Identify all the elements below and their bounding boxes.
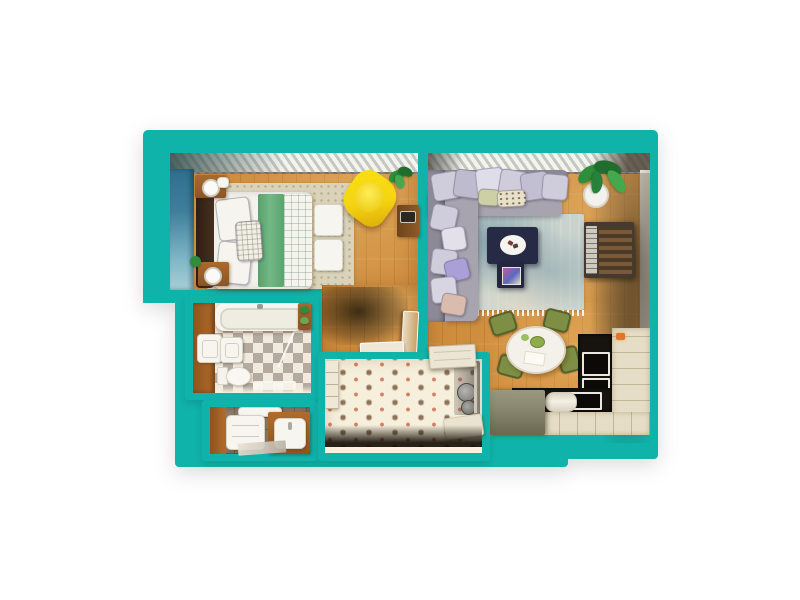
coat-rack: [454, 361, 480, 415]
threshold-door-panel: [428, 344, 476, 369]
tv-wood-slats: [599, 226, 632, 274]
tv-speaker: [586, 226, 597, 274]
table-papers: [523, 351, 546, 367]
bathroom-sink: [197, 334, 222, 363]
door-panel-line: [434, 358, 471, 361]
bathroom-floor-glow: [215, 386, 311, 393]
cooktop-flame: [616, 333, 625, 340]
bathtub-basin: [220, 308, 304, 330]
side-table: [497, 262, 524, 288]
sofa-pillow: [541, 173, 569, 201]
rack-bar: [474, 363, 477, 413]
shelf-plant: [300, 317, 309, 324]
tray-item: [512, 243, 518, 248]
entry-door-shadow: [325, 425, 482, 447]
sofa-pillow-floral: [497, 189, 527, 207]
armchair-cushion: [349, 177, 389, 218]
bedroom-curtain: [170, 169, 194, 290]
table-plate: [521, 334, 529, 341]
kitchen-roll: [545, 392, 577, 412]
small-plant: [190, 256, 201, 267]
hallway: [325, 359, 482, 453]
bedroom-radiator: [170, 153, 418, 174]
tv-unit: [584, 222, 634, 278]
kitchen-appliance: [582, 352, 610, 376]
washer-drawer-line: [232, 425, 259, 426]
wc-sink-faucet: [288, 422, 292, 430]
bathroom-shelf: [298, 303, 311, 330]
nightstand-lamp: [204, 267, 222, 285]
bed-pouf: [314, 239, 343, 271]
sofa-pillow-blush: [439, 292, 467, 317]
toilet-bowl: [226, 367, 251, 386]
coffee-table-tray: [500, 235, 526, 255]
bed-checked-pillow: [235, 220, 264, 262]
counter-line: [225, 343, 239, 358]
bathroom: [193, 303, 311, 393]
washer-drawer-line: [232, 436, 259, 437]
bathtub: [215, 303, 305, 331]
bed-checked-duvet: [284, 194, 312, 287]
bathtub-faucet: [257, 304, 263, 309]
floor-plan-render: [0, 0, 800, 600]
corridor-shadow: [322, 287, 408, 345]
wc-wood-wall: [210, 407, 226, 454]
nightstand-kettle: [217, 177, 229, 188]
wall-desk: [397, 205, 419, 237]
table-salad-bowl: [530, 336, 545, 348]
bedroom-radiator-shade: [170, 153, 418, 172]
side-table-photo: [502, 267, 521, 285]
bedroom: [170, 153, 418, 290]
bed-pouf: [314, 204, 343, 236]
hall-shelf-left: [326, 361, 338, 409]
shelf-plant: [300, 306, 309, 313]
wc-laundry: [210, 407, 310, 454]
entry-floor-glow: [325, 447, 482, 453]
dining-table: [506, 326, 566, 374]
desk-radio: [400, 211, 416, 223]
coffee-table: [487, 227, 538, 264]
bathroom-counter: [220, 337, 243, 363]
sink-basin-line: [202, 340, 218, 358]
shower-glass: [277, 332, 294, 368]
door-panel-line: [434, 350, 471, 353]
kitchen-island: [490, 390, 545, 435]
corridor: [322, 285, 418, 358]
